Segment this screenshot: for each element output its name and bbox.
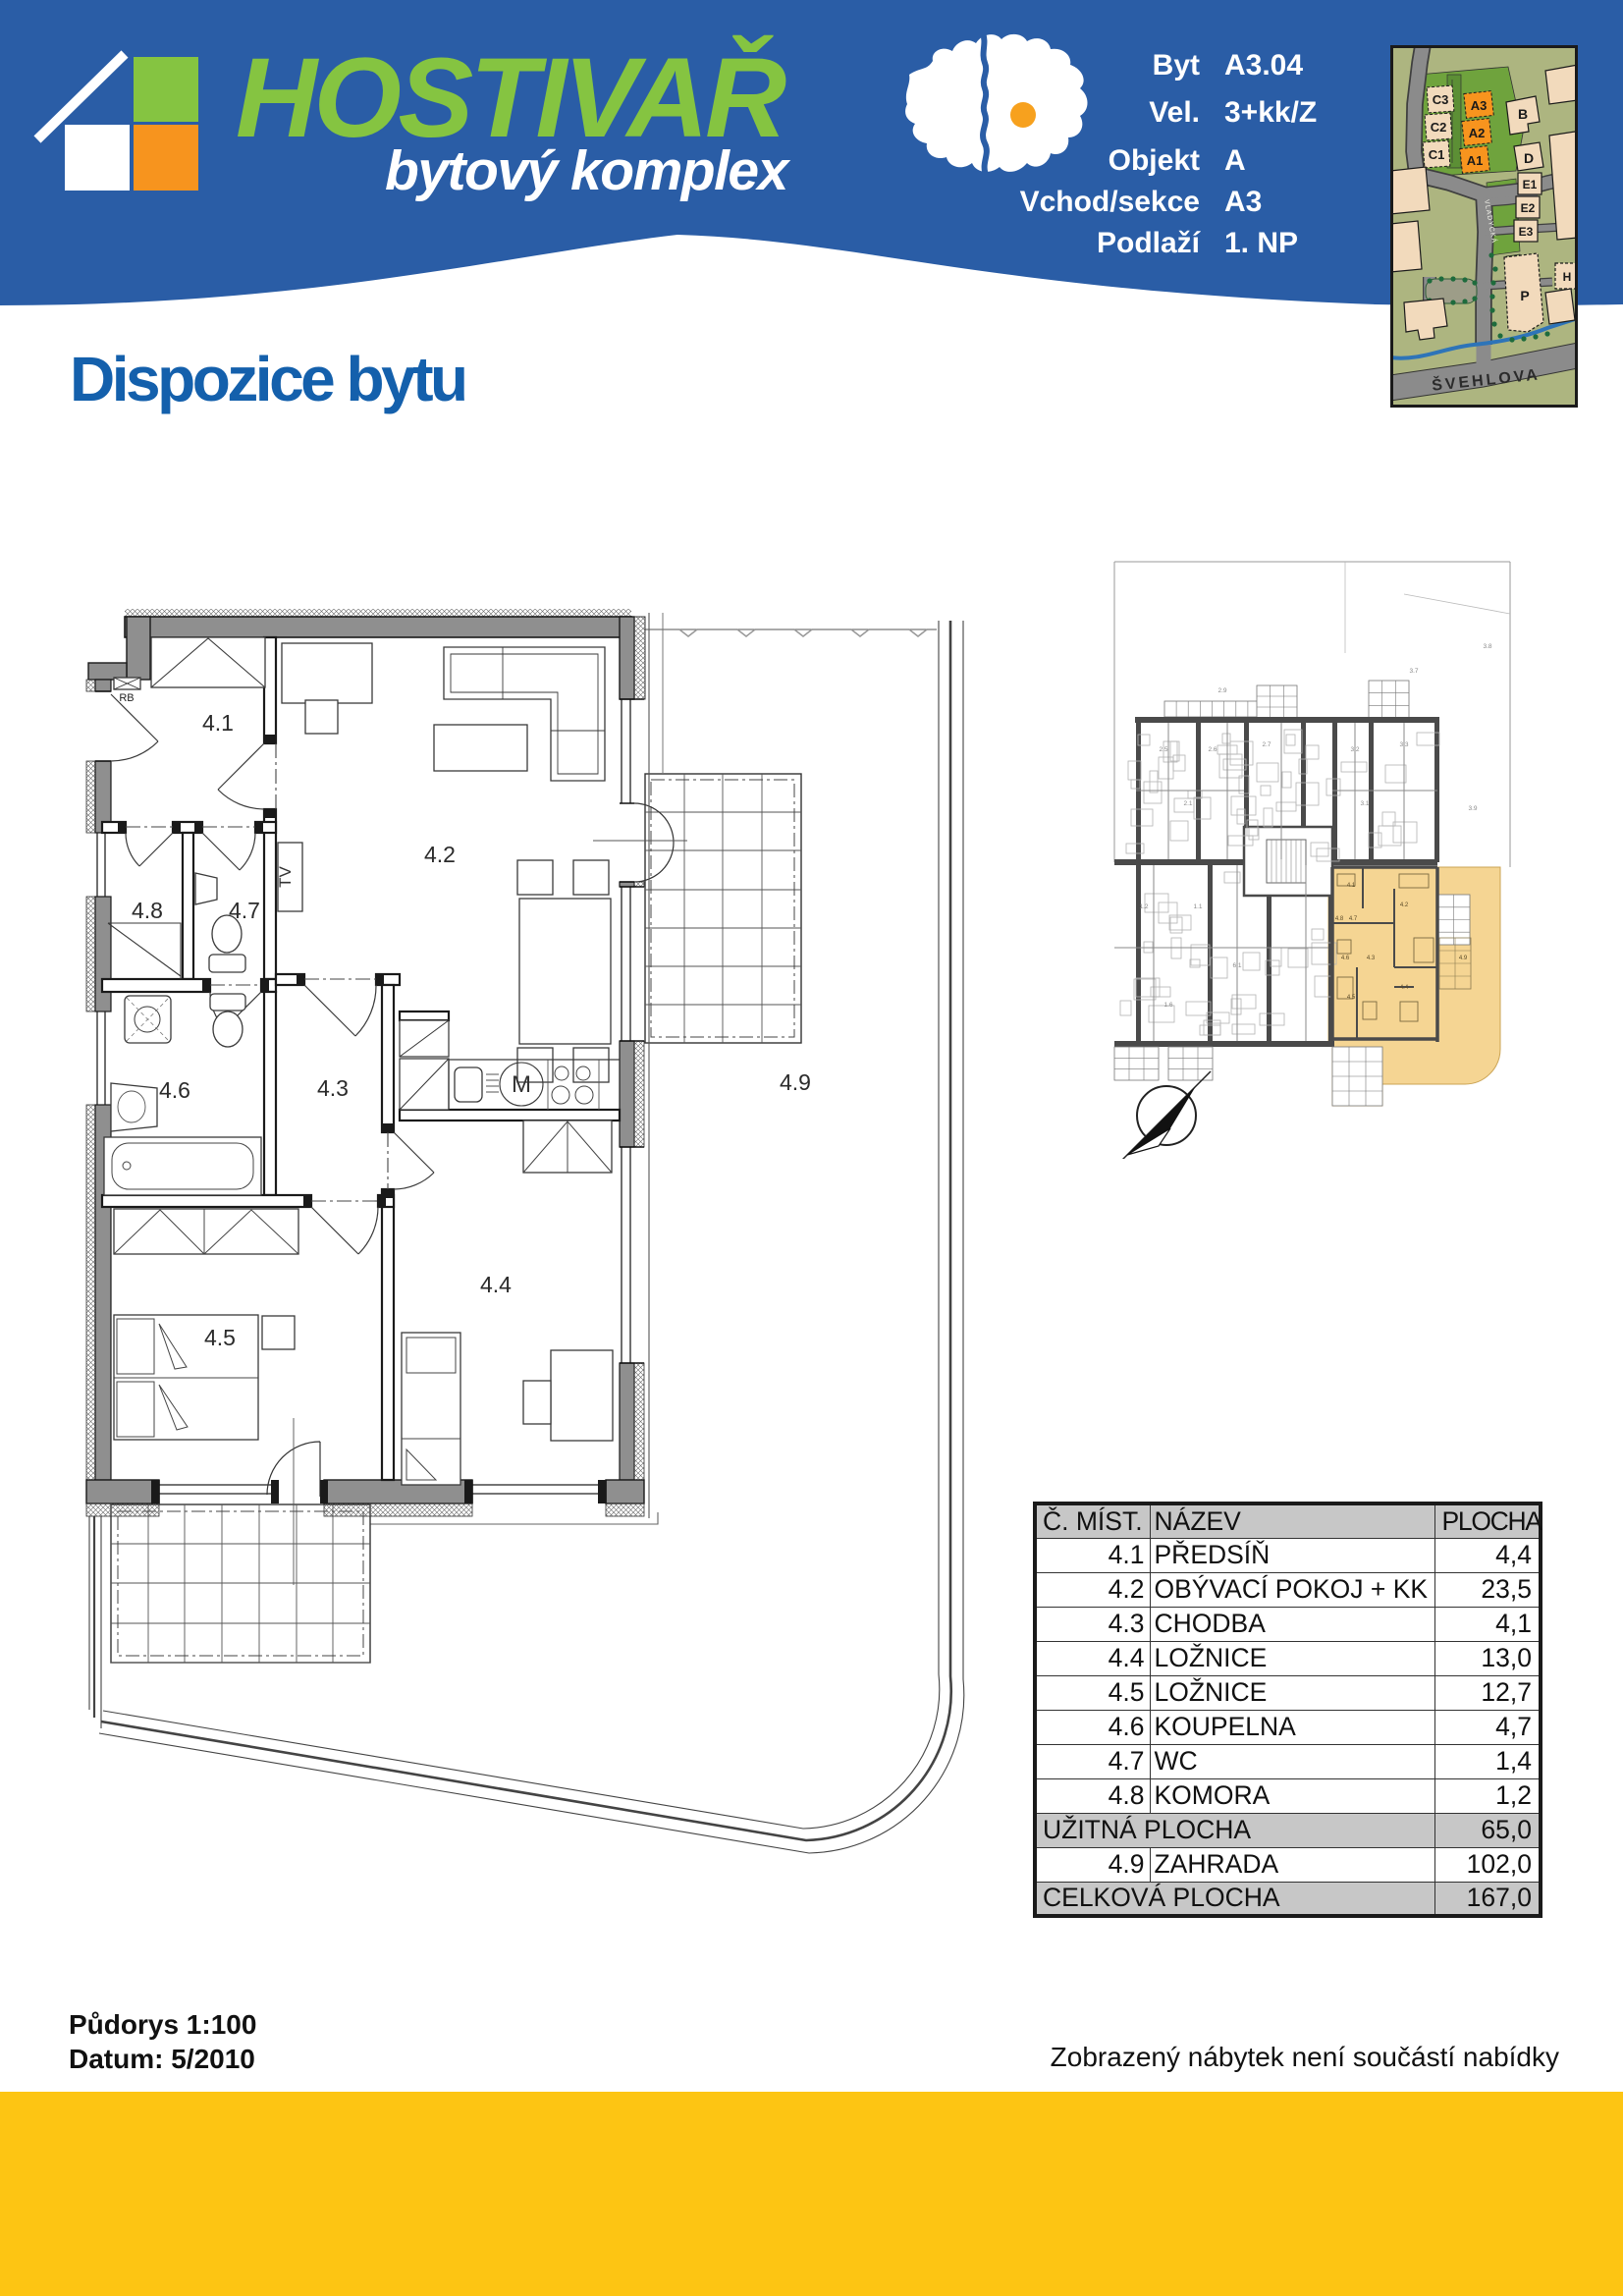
- svg-text:2.9: 2.9: [1217, 687, 1226, 694]
- svg-text:E3: E3: [1519, 225, 1534, 239]
- svg-text:C2: C2: [1431, 120, 1447, 135]
- svg-text:4.2: 4.2: [424, 842, 456, 867]
- svg-text:4.9: 4.9: [1459, 956, 1468, 961]
- svg-text:H: H: [1563, 270, 1572, 284]
- svg-text:4.4: 4.4: [1400, 985, 1409, 991]
- svg-text:2.5: 2.5: [1159, 746, 1167, 753]
- svg-text:4.9: 4.9: [780, 1069, 811, 1095]
- svg-text:C1: C1: [1429, 147, 1445, 162]
- svg-text:P: P: [1520, 288, 1529, 303]
- svg-text:4.4: 4.4: [480, 1272, 512, 1297]
- svg-text:4.3: 4.3: [1367, 956, 1376, 961]
- svg-text:4.3: 4.3: [317, 1075, 349, 1101]
- svg-text:3.8: 3.8: [1483, 643, 1491, 650]
- svg-text:4.6: 4.6: [1341, 956, 1350, 961]
- svg-text:A2: A2: [1469, 126, 1486, 140]
- svg-text:TV: TV: [276, 865, 295, 887]
- svg-text:2.6: 2.6: [1208, 746, 1217, 753]
- svg-text:3.3: 3.3: [1399, 741, 1408, 748]
- svg-text:2.7: 2.7: [1262, 741, 1271, 748]
- svg-text:4.6: 4.6: [159, 1077, 190, 1103]
- svg-text:4.5: 4.5: [204, 1325, 236, 1350]
- svg-text:4.2: 4.2: [1400, 902, 1409, 908]
- svg-text:B: B: [1518, 106, 1528, 122]
- svg-text:1.1: 1.1: [1193, 903, 1202, 910]
- svg-text:4.5: 4.5: [1347, 995, 1356, 1001]
- svg-text:4.8: 4.8: [1335, 916, 1344, 922]
- svg-text:M: M: [512, 1071, 531, 1098]
- svg-text:RB: RB: [119, 692, 134, 704]
- svg-text:4.8: 4.8: [132, 898, 163, 923]
- svg-text:3.2: 3.2: [1350, 746, 1359, 753]
- svg-text:2.1: 2.1: [1183, 800, 1192, 807]
- svg-text:4.7: 4.7: [1349, 916, 1358, 922]
- svg-text:4.7: 4.7: [229, 898, 260, 923]
- svg-text:3.9: 3.9: [1468, 805, 1477, 812]
- svg-text:A1: A1: [1467, 153, 1484, 168]
- svg-text:3.1: 3.1: [1360, 800, 1369, 807]
- svg-text:4.1: 4.1: [1347, 883, 1356, 889]
- svg-text:1.6: 1.6: [1163, 1002, 1172, 1009]
- svg-text:E1: E1: [1523, 178, 1538, 191]
- svg-text:D: D: [1524, 150, 1534, 166]
- svg-text:C3: C3: [1433, 92, 1449, 107]
- svg-text:E2: E2: [1521, 201, 1536, 215]
- svg-text:3.7: 3.7: [1409, 668, 1418, 675]
- svg-text:1.2: 1.2: [1139, 903, 1148, 910]
- svg-text:A3: A3: [1471, 98, 1488, 113]
- svg-text:6.1: 6.1: [1232, 962, 1241, 969]
- svg-text:4.1: 4.1: [202, 710, 234, 736]
